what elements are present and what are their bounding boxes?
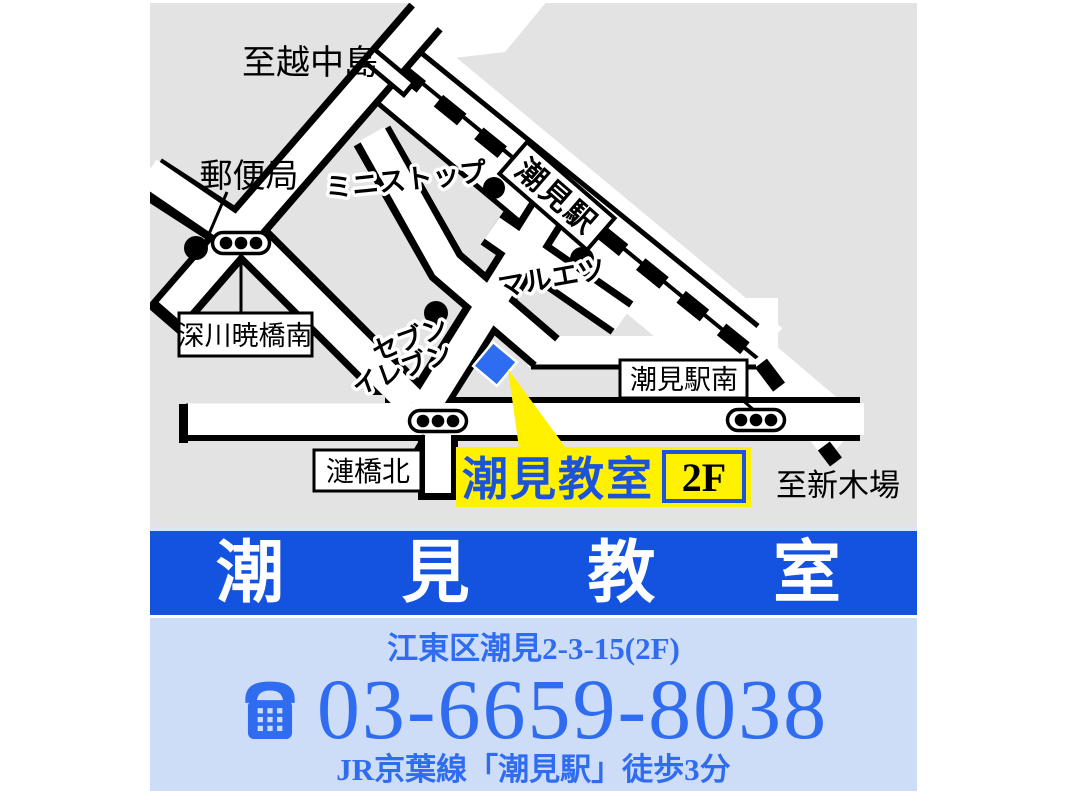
traffic-light-icon: [410, 411, 467, 432]
banner-char: 室: [773, 531, 841, 615]
target-label: 潮見教室: [462, 453, 654, 505]
post-office-label: 郵便局: [200, 158, 299, 195]
access-text: JR京葉線「潮見駅」徒歩3分: [336, 751, 730, 789]
phone-row: 03-6659-8038: [239, 668, 828, 750]
destination-top-label: 至越中島: [242, 44, 378, 82]
banner-char: 教: [587, 531, 655, 615]
title-banner: 潮 見 教 室: [150, 531, 917, 615]
phone-number: 03-6659-8038: [317, 668, 828, 750]
sazanami-label: 漣橋北: [326, 456, 410, 488]
contact-panel: 江東区潮見2-3-15(2F) 03-6659-8038 JR京葉線「潮見駅」徒…: [150, 618, 917, 791]
street-map: 潮見教室 2F 至越中島 至新木場 郵便局 ミニストップ マルエツ セブン イレ…: [0, 0, 1066, 530]
fukagawa-label: 深川暁橋南: [178, 321, 313, 351]
post-office-dot: [184, 236, 208, 260]
banner-char: 見: [402, 531, 470, 615]
destination-bottom-label: 至新木場: [776, 468, 900, 503]
banner-char: 潮: [216, 531, 284, 615]
traffic-light-icon: [213, 233, 270, 254]
road-touchup: [150, 395, 385, 404]
road-end-cap: [179, 404, 188, 443]
traffic-light-icon: [728, 410, 785, 431]
target-floor: 2F: [682, 455, 726, 500]
access-map-flyer: 潮見教室 2F 至越中島 至新木場 郵便局 ミニストップ マルエツ セブン イレ…: [0, 0, 1066, 800]
target-highlight: 潮見教室 2F: [456, 447, 751, 507]
phone-icon: [239, 679, 301, 739]
station-south-label: 潮見駅南: [630, 365, 738, 395]
